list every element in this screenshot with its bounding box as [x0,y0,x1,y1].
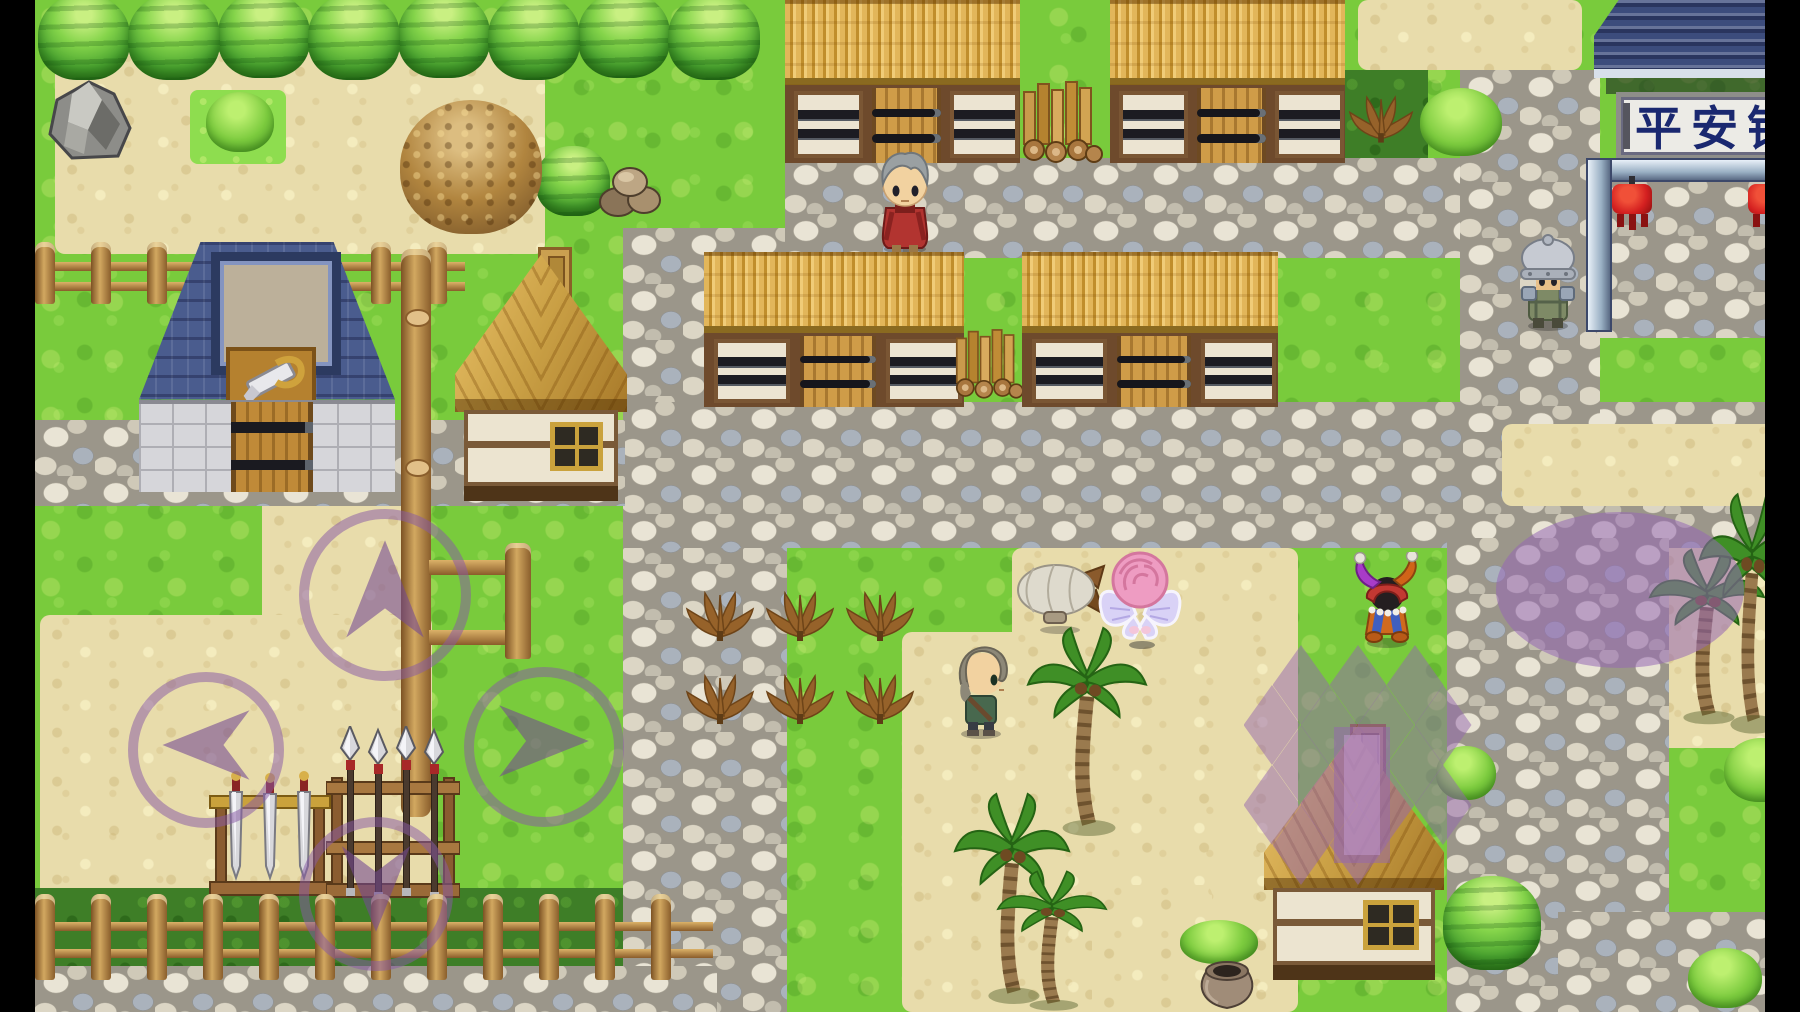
old-man-npc [872,148,938,256]
bush-top-left [206,92,274,152]
longhouse-top-left [785,0,1020,163]
tree-row-1 [38,0,130,80]
letterbox-left [0,0,35,1012]
town-sign-text: 平安镇 [1625,101,1765,151]
tree-row-2 [128,0,220,80]
longhouse-mid-left [704,252,964,407]
tree-row-7 [578,0,670,78]
tree-row-5 [398,0,490,78]
rock-pile [596,154,664,220]
palm-tree-3 [996,870,1108,1012]
town-gate: 平安镇 [1578,0,1765,338]
woodpile-mid [950,318,1028,408]
game-map[interactable]: 平安镇 [35,0,1765,1012]
dpad-down-button[interactable] [299,817,453,971]
crop-fern-6 [845,668,915,730]
dpad-right-button[interactable] [464,667,624,827]
tree-row-6 [488,0,580,80]
jester-npc [1352,552,1422,648]
dpad-left-arrow-icon [162,705,249,784]
woodpile-top [1016,78,1108,164]
tree-row-8 [668,0,760,80]
letterbox-right [1765,0,1800,1012]
tree-row-3 [218,0,310,78]
weapon-shop [139,242,395,492]
player-character [949,640,1013,740]
dpad-up-button[interactable] [299,509,471,681]
crop-fern-4 [685,668,755,730]
leaf-mound [400,100,542,234]
crop-fern-5 [765,668,835,730]
palm-tree-right-2 [1698,492,1765,736]
bush-far-right-2 [1688,948,1762,1008]
dry-fern-top-right [1348,88,1414,150]
longhouse-top-right [1110,0,1345,163]
crop-fern-3 [845,585,915,647]
airship-blimp [1016,562,1108,634]
dpad-down-arrow-icon [337,846,415,932]
crop-fern-2 [765,585,835,647]
sand-top-right [1358,0,1582,70]
game-stage: 平安镇 [0,0,1800,1012]
crop-fern-1 [685,585,755,647]
dpad-left-button[interactable] [128,672,284,828]
dpad-up-arrow-icon [341,540,429,637]
longhouse-mid-right [1022,252,1278,407]
wood-house-bottom [1264,724,1444,980]
rock-boulder [44,78,134,162]
bush-top-right [1420,88,1502,156]
bush-mid-right [1436,746,1496,800]
tree-bottom-right [1443,876,1541,970]
clay-pot [1194,958,1260,1012]
soldier-npc [1516,232,1580,332]
tree-row-4 [308,0,400,80]
dpad-right-arrow-icon [499,701,589,782]
